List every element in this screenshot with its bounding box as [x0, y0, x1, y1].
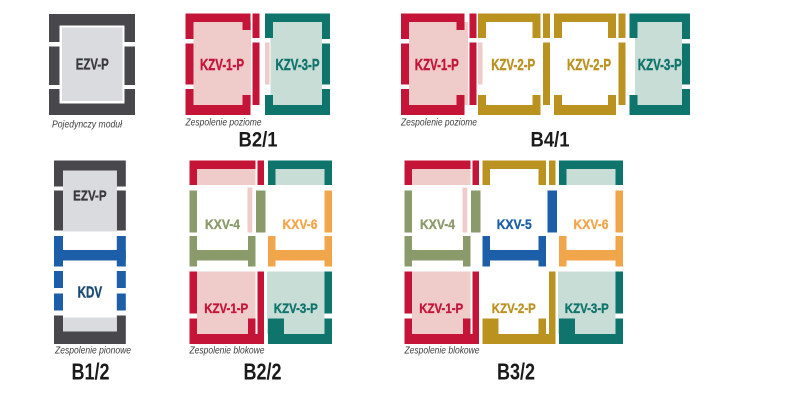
svg-text:KZV-1-P: KZV-1-P — [200, 57, 244, 74]
svg-text:Zespolenie blokowe: Zespolenie blokowe — [404, 346, 480, 357]
svg-text:B2/1: B2/1 — [239, 128, 278, 152]
svg-text:EZV-P: EZV-P — [76, 57, 109, 74]
svg-text:KZV-3-P: KZV-3-P — [565, 300, 609, 316]
svg-text:Zespolenie blokowe: Zespolenie blokowe — [189, 346, 265, 357]
svg-text:KXV-6: KXV-6 — [574, 216, 609, 232]
svg-text:KZV-1-P: KZV-1-P — [419, 300, 463, 316]
svg-text:KXV-6: KXV-6 — [283, 216, 318, 232]
svg-text:KZV-2-P: KZV-2-P — [492, 300, 536, 316]
svg-text:B1/2: B1/2 — [72, 359, 110, 385]
svg-text:KXV-4: KXV-4 — [420, 216, 455, 232]
svg-text:Pojedynczy moduł: Pojedynczy moduł — [52, 120, 123, 131]
svg-text:KZV-2-P: KZV-2-P — [491, 57, 535, 74]
svg-text:KZV-3-P: KZV-3-P — [276, 57, 320, 74]
svg-text:B3/2: B3/2 — [497, 359, 535, 385]
svg-text:KXV-4: KXV-4 — [205, 216, 240, 232]
svg-text:KZV-3-P: KZV-3-P — [638, 57, 682, 74]
svg-text:Zespolenie poziome: Zespolenie poziome — [400, 118, 477, 129]
svg-text:KZV-3-P: KZV-3-P — [274, 300, 318, 316]
svg-text:EZV-P: EZV-P — [73, 188, 107, 205]
svg-text:KZV-2-P: KZV-2-P — [567, 57, 611, 74]
svg-text:Zespolenie pionowe: Zespolenie pionowe — [54, 346, 131, 357]
svg-text:B2/2: B2/2 — [244, 359, 282, 385]
svg-text:KZV-1-P: KZV-1-P — [415, 57, 459, 74]
svg-text:KXV-5: KXV-5 — [497, 216, 532, 232]
svg-text:KZV-1-P: KZV-1-P — [204, 300, 248, 316]
svg-text:KDV: KDV — [78, 285, 103, 302]
svg-text:B4/1: B4/1 — [531, 128, 570, 152]
